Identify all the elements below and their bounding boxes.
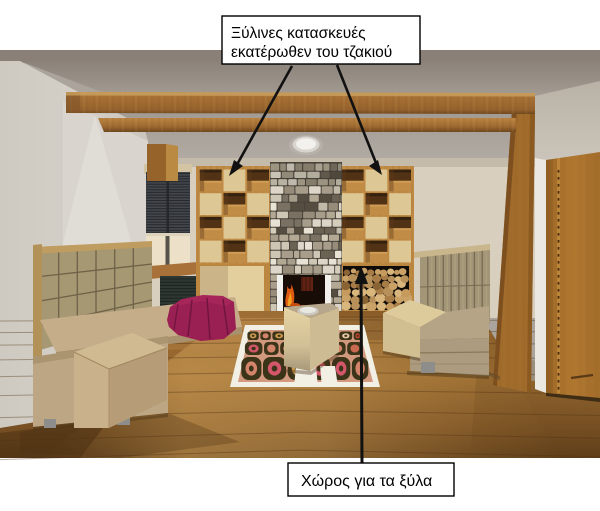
svg-text:Ξύλινες κατασκευές: Ξύλινες κατασκευές (231, 25, 366, 42)
svg-text:εκατέρωθεν του τζακιού: εκατέρωθεν του τζακιού (231, 44, 392, 61)
svg-text:Χώρος για τα ξύλα: Χώρος για τα ξύλα (301, 473, 432, 490)
